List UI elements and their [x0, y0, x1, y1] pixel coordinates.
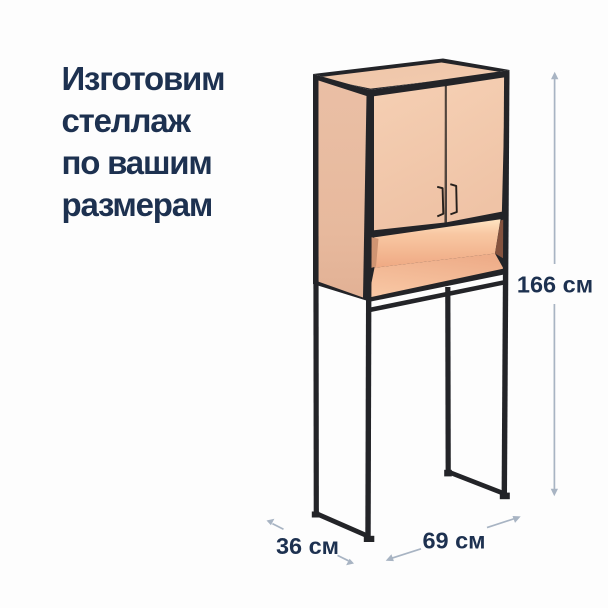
svg-text:166 см: 166 см — [517, 272, 593, 298]
svg-text:36 см: 36 см — [276, 533, 339, 559]
svg-text:69 см: 69 см — [422, 528, 485, 554]
